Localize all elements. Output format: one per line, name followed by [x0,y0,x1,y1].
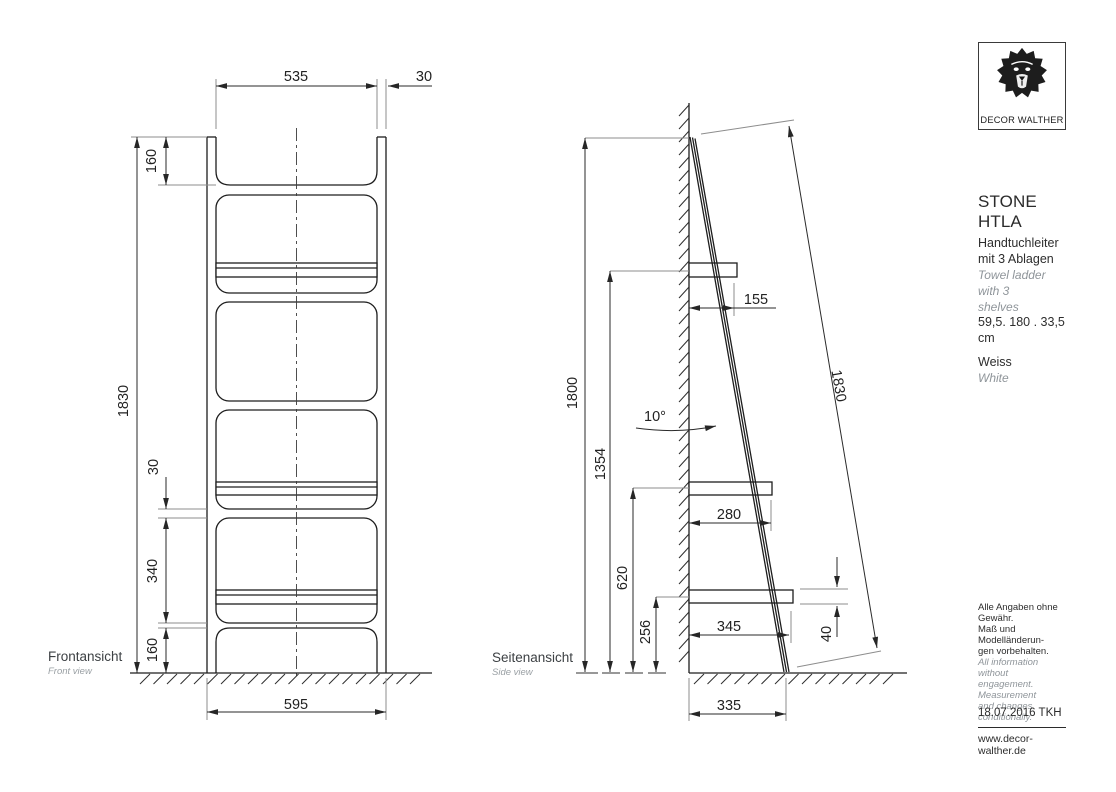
dim-front-outer-width: 595 [284,697,308,713]
dim-side-wall-height: 1800 [565,377,581,409]
product-color-en: White [978,370,1012,386]
color-block: Weiss White [978,354,1012,386]
legal-text-de: Alle Angaben ohne Gewähr. [978,602,1070,624]
product-description-en: shelves [978,299,1070,315]
side-shelf-2 [689,482,772,495]
legal-block: Alle Angaben ohne Gewähr. Maß und Modell… [978,602,1070,723]
footer-divider [978,727,1066,728]
product-block: STONE HTLA Handtuchleiter mit 3 Ablagen … [978,192,1070,315]
dim-side-floor-depth: 335 [717,698,741,714]
side-view-label-en: Side view [492,667,534,678]
legal-text-de: Maß und Modelländerun- [978,624,1070,646]
dim-front-shelf-spacing: 340 [145,559,161,583]
dim-side-shelf2-height: 620 [615,566,631,590]
dim-front-rung-gap: 30 [146,459,162,475]
size-block: 59,5. 180 . 33,5 cm [978,314,1065,346]
front-view-label: Frontansicht [48,649,123,664]
side-shelf-3 [689,590,793,603]
dim-side-shelf-thickness: 40 [819,626,835,642]
legal-text-en: engagement. Measurement [978,679,1070,701]
front-view-label-en: Front view [48,666,93,677]
dim-side-ladder-length: 1830 [827,369,848,404]
product-description-de: mit 3 Ablagen [978,251,1070,267]
dim-side-shelf2-depth: 280 [717,507,741,523]
product-name: STONE HTLA [978,192,1070,232]
lion-head-icon [993,46,1051,104]
technical-drawing: 535 30 160 1830 30 340 160 595 [0,0,1116,792]
dim-front-top-section: 160 [144,149,160,173]
product-description-de: Handtuchleiter [978,235,1070,251]
legal-text-en: All information without [978,657,1070,679]
dim-front-total-height: 1830 [116,385,132,417]
brand-name: DECOR WALTHER [980,115,1063,125]
dim-side-shelf1-depth: 155 [744,292,768,308]
side-ground-hatch [694,674,893,684]
dim-side-shelf3-depth: 345 [717,619,741,635]
date-author: 18.07.2016 TKH [978,707,1062,719]
dim-front-leg-height: 160 [145,638,161,662]
dim-front-inner-width: 535 [284,69,308,85]
side-view-label: Seitenansicht [492,650,573,665]
front-view-dimensions: 535 30 160 1830 30 340 160 595 [116,69,432,720]
dim-front-rail-width: 30 [416,69,432,85]
angle-arc [636,426,716,431]
product-size-unit: cm [978,330,1065,346]
product-size: 59,5. 180 . 33,5 [978,314,1065,330]
side-view-drawing [576,103,907,684]
front-ground-hatch [140,674,420,684]
front-view-drawing [130,128,432,684]
product-color-de: Weiss [978,354,1012,370]
legal-text-de: gen vorbehalten. [978,646,1070,657]
product-description-en: Towel ladder with 3 [978,267,1070,299]
side-view-dimensions: 1800 1354 620 256 155 10° 280 345 40 183… [565,120,881,721]
info-panel: DECOR WALTHER STONE HTLA Handtuchleiter … [978,42,1070,760]
dim-side-shelf3-height: 256 [638,620,654,644]
website-text: www.decor-walther.de [978,733,1070,757]
dim-side-tilt-angle: 10° [644,409,666,425]
dim-side-shelf1-height: 1354 [593,448,609,480]
brand-logo: DECOR WALTHER [978,42,1066,130]
lion-mane [997,48,1047,97]
wall-hatch [679,105,689,662]
